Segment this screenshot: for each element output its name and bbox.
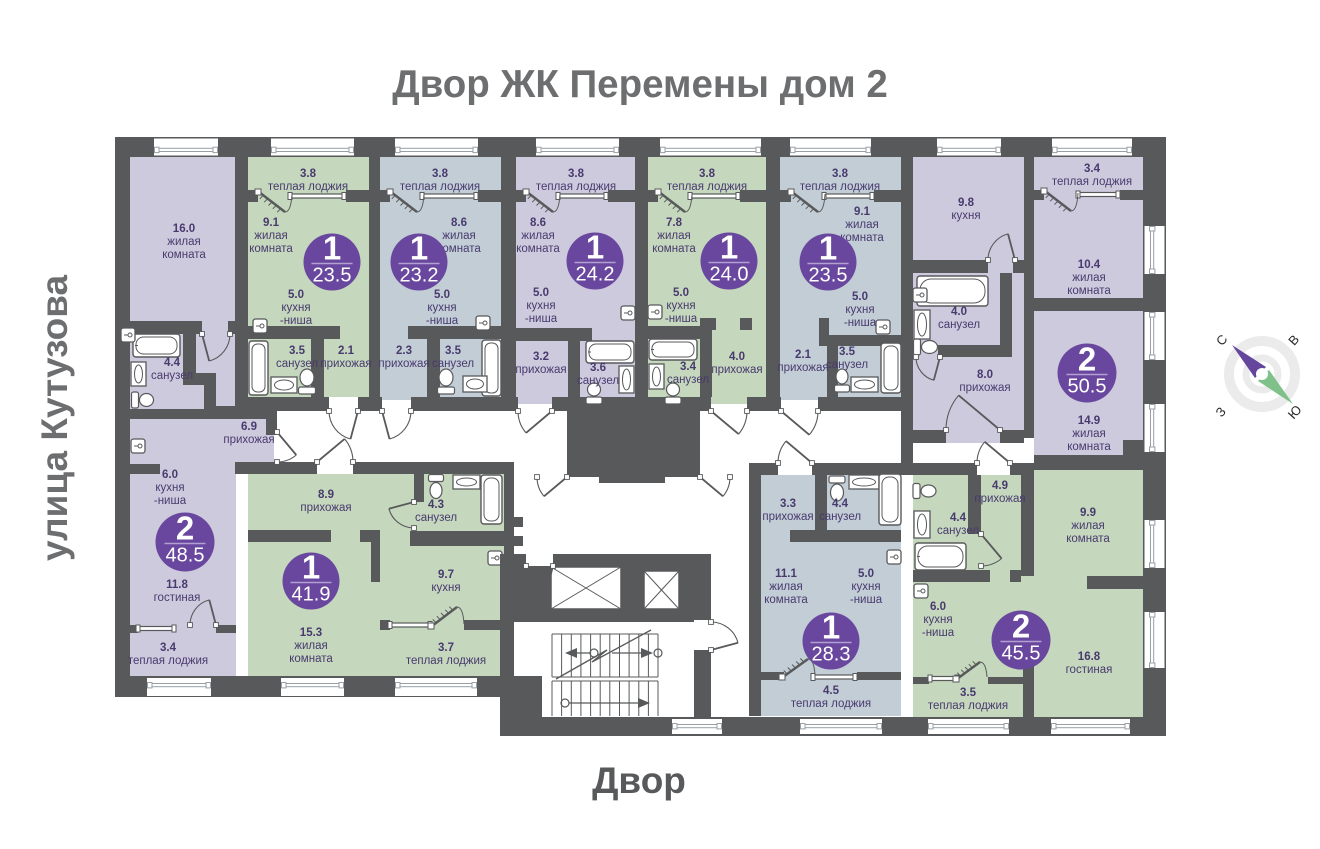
svg-text:санузел: санузел xyxy=(667,374,709,386)
svg-text:6.0: 6.0 xyxy=(162,469,178,481)
svg-text:1: 1 xyxy=(302,549,320,586)
svg-text:улица Кутузова: улица Кутузова xyxy=(34,275,75,561)
svg-text:4.0: 4.0 xyxy=(951,306,967,318)
svg-text:санузел: санузел xyxy=(415,512,457,524)
svg-text:4.4: 4.4 xyxy=(950,512,967,524)
svg-text:-ниша: -ниша xyxy=(154,495,187,507)
svg-text:10.4: 10.4 xyxy=(1078,259,1101,271)
svg-text:9.1: 9.1 xyxy=(263,217,280,229)
svg-text:кухня: кухня xyxy=(851,581,880,593)
svg-text:-ниша: -ниша xyxy=(426,315,459,327)
svg-text:теплая лоджия: теплая лоджия xyxy=(536,181,616,193)
svg-text:Двор: Двор xyxy=(592,760,686,801)
svg-text:3.8: 3.8 xyxy=(432,168,449,180)
svg-text:жилая: жилая xyxy=(657,230,690,242)
svg-text:санузел: санузел xyxy=(826,359,868,371)
svg-text:23.2: 23.2 xyxy=(400,265,439,287)
svg-text:23.5: 23.5 xyxy=(313,265,352,287)
svg-text:16.0: 16.0 xyxy=(173,223,195,235)
svg-text:3.8: 3.8 xyxy=(832,168,849,180)
svg-text:24.0: 24.0 xyxy=(710,264,749,286)
svg-text:14.9: 14.9 xyxy=(1078,415,1100,427)
svg-text:санузел: санузел xyxy=(937,525,979,537)
svg-text:теплая лоджия: теплая лоджия xyxy=(791,698,871,710)
svg-text:-ниша: -ниша xyxy=(844,317,877,329)
svg-text:теплая лоджия: теплая лоджия xyxy=(1052,176,1132,188)
svg-text:45.5: 45.5 xyxy=(1002,643,1041,665)
svg-text:41.9: 41.9 xyxy=(292,584,331,606)
svg-text:жилая: жилая xyxy=(254,230,287,242)
svg-text:жилая: жилая xyxy=(294,640,327,652)
svg-text:3.4: 3.4 xyxy=(680,361,697,373)
svg-text:кухня: кухня xyxy=(427,302,456,314)
svg-text:кухня: кухня xyxy=(951,210,980,222)
svg-text:санузел: санузел xyxy=(938,319,980,331)
svg-text:2.1: 2.1 xyxy=(795,349,812,361)
svg-text:1: 1 xyxy=(720,229,738,266)
svg-text:9.8: 9.8 xyxy=(958,197,975,209)
svg-text:жилая: жилая xyxy=(442,230,475,242)
svg-text:24.2: 24.2 xyxy=(576,264,615,286)
svg-text:жилая: жилая xyxy=(167,236,200,248)
svg-text:4.4: 4.4 xyxy=(832,498,849,510)
svg-text:санузел: санузел xyxy=(276,358,318,370)
svg-text:комната: комната xyxy=(1067,285,1111,297)
svg-text:6.0: 6.0 xyxy=(930,601,946,613)
svg-text:11.1: 11.1 xyxy=(775,568,797,580)
svg-text:3.2: 3.2 xyxy=(533,351,549,363)
svg-text:жилая: жилая xyxy=(845,219,878,231)
svg-text:4.5: 4.5 xyxy=(823,685,840,697)
svg-text:8.0: 8.0 xyxy=(977,369,993,381)
svg-text:-ниша: -ниша xyxy=(850,594,883,606)
svg-text:-ниша: -ниша xyxy=(922,627,955,639)
svg-text:прихожая: прихожая xyxy=(711,364,762,376)
svg-text:жилая: жилая xyxy=(769,581,802,593)
svg-text:5.0: 5.0 xyxy=(852,291,868,303)
svg-text:санузел: санузел xyxy=(577,375,619,387)
svg-text:6.9: 6.9 xyxy=(241,421,257,433)
svg-text:жилая: жилая xyxy=(521,230,554,242)
svg-text:прихожая: прихожая xyxy=(762,511,813,523)
svg-text:2: 2 xyxy=(176,510,194,547)
svg-text:комната: комната xyxy=(1066,533,1110,545)
svg-text:5.0: 5.0 xyxy=(434,289,450,301)
svg-text:50.5: 50.5 xyxy=(1068,376,1107,398)
svg-text:теплая лоджия: теплая лоджия xyxy=(667,181,747,193)
svg-text:3.8: 3.8 xyxy=(699,168,716,180)
svg-text:11.8: 11.8 xyxy=(166,579,188,591)
svg-text:3.5: 3.5 xyxy=(839,346,856,358)
svg-text:5.0: 5.0 xyxy=(288,289,304,301)
svg-text:комната: комната xyxy=(516,243,560,255)
svg-text:прихожая: прихожая xyxy=(300,502,351,514)
svg-text:9.9: 9.9 xyxy=(1080,507,1096,519)
svg-text:1: 1 xyxy=(822,609,840,646)
svg-text:1: 1 xyxy=(410,230,428,267)
svg-text:2: 2 xyxy=(1078,341,1096,378)
svg-text:9.7: 9.7 xyxy=(438,569,454,581)
svg-text:1: 1 xyxy=(586,229,604,266)
svg-text:прихожая: прихожая xyxy=(974,493,1025,505)
svg-text:кухня: кухня xyxy=(431,582,460,594)
svg-text:теплая лоджия: теплая лоджия xyxy=(800,181,880,193)
svg-text:теплая лоджия: теплая лоджия xyxy=(400,181,480,193)
svg-text:теплая лоджия: теплая лоджия xyxy=(928,700,1008,712)
svg-text:кухня: кухня xyxy=(281,302,310,314)
svg-text:прихожая: прихожая xyxy=(320,358,371,370)
svg-text:16.8: 16.8 xyxy=(1078,651,1101,663)
svg-text:комната: комната xyxy=(162,249,206,261)
svg-text:прихожая: прихожая xyxy=(378,358,429,370)
svg-text:комната: комната xyxy=(289,653,333,665)
svg-text:2.1: 2.1 xyxy=(338,345,355,357)
svg-text:комната: комната xyxy=(652,243,696,255)
svg-text:санузел: санузел xyxy=(819,511,861,523)
svg-text:-ниша: -ниша xyxy=(665,313,698,325)
svg-text:3.3: 3.3 xyxy=(780,498,796,510)
svg-text:теплая лоджия: теплая лоджия xyxy=(128,655,208,667)
svg-text:санузел: санузел xyxy=(151,370,193,382)
svg-text:комната: комната xyxy=(1067,441,1111,453)
svg-text:прихожая: прихожая xyxy=(223,434,274,446)
svg-text:кухня: кухня xyxy=(155,482,184,494)
svg-text:санузел: санузел xyxy=(432,358,474,370)
svg-text:жилая: жилая xyxy=(1071,520,1104,532)
svg-text:кухня: кухня xyxy=(666,300,695,312)
svg-text:-ниша: -ниша xyxy=(280,315,313,327)
svg-text:1: 1 xyxy=(323,230,341,267)
svg-text:4.4: 4.4 xyxy=(164,357,181,369)
svg-text:3.7: 3.7 xyxy=(438,642,454,654)
svg-text:3.8: 3.8 xyxy=(568,168,585,180)
svg-text:48.5: 48.5 xyxy=(166,545,205,567)
svg-text:4.3: 4.3 xyxy=(428,499,444,511)
svg-text:комната: комната xyxy=(764,594,808,606)
svg-text:гостиная: гостиная xyxy=(1066,664,1113,676)
svg-text:прихожая: прихожая xyxy=(959,382,1010,394)
svg-text:-ниша: -ниша xyxy=(525,313,558,325)
svg-text:15.3: 15.3 xyxy=(300,627,322,639)
svg-text:23.5: 23.5 xyxy=(809,265,848,287)
svg-text:9.1: 9.1 xyxy=(854,206,871,218)
svg-text:8.6: 8.6 xyxy=(530,217,546,229)
svg-text:5.0: 5.0 xyxy=(673,287,689,299)
svg-text:кухня: кухня xyxy=(526,300,555,312)
svg-text:3.5: 3.5 xyxy=(445,345,462,357)
svg-text:5.0: 5.0 xyxy=(858,568,874,580)
svg-text:комната: комната xyxy=(249,243,293,255)
svg-text:теплая лоджия: теплая лоджия xyxy=(268,181,348,193)
svg-text:4.9: 4.9 xyxy=(992,480,1008,492)
svg-text:кухня: кухня xyxy=(923,614,952,626)
svg-text:28.3: 28.3 xyxy=(812,644,851,666)
svg-text:3.4: 3.4 xyxy=(1084,163,1101,175)
svg-text:1: 1 xyxy=(819,230,837,267)
svg-text:3.6: 3.6 xyxy=(590,362,606,374)
svg-text:теплая лоджия: теплая лоджия xyxy=(406,655,486,667)
svg-text:4.0: 4.0 xyxy=(729,351,745,363)
svg-text:5.0: 5.0 xyxy=(533,287,549,299)
svg-text:гостиная: гостиная xyxy=(154,592,201,604)
svg-text:3.8: 3.8 xyxy=(300,168,317,180)
svg-text:кухня: кухня xyxy=(845,304,874,316)
svg-text:2.3: 2.3 xyxy=(396,345,412,357)
svg-text:Двор ЖК Перемены дом 2: Двор ЖК Перемены дом 2 xyxy=(392,63,888,106)
svg-text:8.6: 8.6 xyxy=(451,217,467,229)
svg-text:жилая: жилая xyxy=(1072,272,1105,284)
svg-text:прихожая: прихожая xyxy=(515,364,566,376)
svg-text:3.5: 3.5 xyxy=(960,687,977,699)
svg-text:жилая: жилая xyxy=(1072,428,1105,440)
svg-text:7.8: 7.8 xyxy=(666,217,683,229)
svg-text:3.5: 3.5 xyxy=(289,345,306,357)
svg-text:прихожая: прихожая xyxy=(777,362,828,374)
svg-text:2: 2 xyxy=(1012,608,1030,645)
svg-text:3.4: 3.4 xyxy=(160,642,177,654)
svg-text:8.9: 8.9 xyxy=(318,489,334,501)
